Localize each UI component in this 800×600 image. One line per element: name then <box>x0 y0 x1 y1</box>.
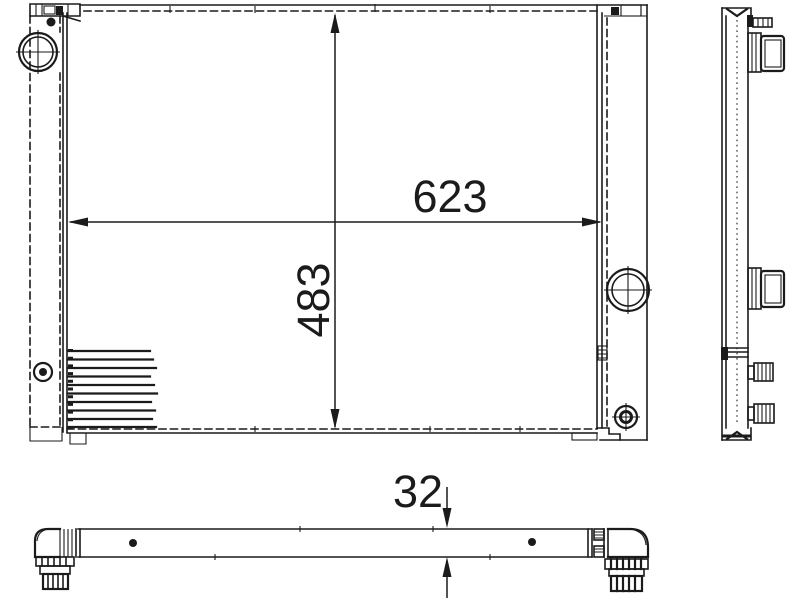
side-view <box>721 8 784 440</box>
radiator-technical-drawing: 623 483 32 <box>0 0 800 600</box>
mounting-bolt-left <box>34 363 52 381</box>
arrowhead-left-icon <box>68 218 88 227</box>
arrowhead-down-icon <box>443 508 452 528</box>
arrowhead-down-icon <box>331 409 340 429</box>
core-outline <box>63 4 647 444</box>
arrowhead-up-icon <box>331 13 340 33</box>
inlet-connector-bottom <box>35 529 80 589</box>
width-dimension-label: 623 <box>412 171 487 222</box>
front-view <box>16 4 652 444</box>
thickness-dimension-label: 32 <box>393 466 443 517</box>
bleed-fitting <box>747 15 772 27</box>
arrowhead-right-icon <box>582 218 602 227</box>
upper-hose-port-side <box>748 33 784 72</box>
threaded-fitting-upper-side <box>748 363 773 381</box>
bottom-view <box>35 526 648 591</box>
lower-hose-port-side <box>748 268 784 309</box>
outlet-connector-bottom <box>588 529 648 591</box>
filler-neck-port <box>16 30 60 74</box>
bottom-strip <box>78 526 592 560</box>
drawing-canvas: 623 483 32 <box>0 0 800 600</box>
cooling-fins-detail <box>68 349 157 430</box>
outlet-port <box>604 266 652 314</box>
mounting-hole-dot <box>129 539 137 547</box>
rivet-dot <box>47 18 56 27</box>
threaded-fitting-lower-side <box>748 404 774 423</box>
arrowhead-up-icon <box>443 557 452 577</box>
tank-joint-side <box>721 347 748 360</box>
dimension-thickness: 32 <box>393 466 452 598</box>
height-dimension-label: 483 <box>288 262 339 337</box>
drain-plug <box>612 403 640 431</box>
mounting-bracket-top-left <box>30 4 80 21</box>
dimension-height: 483 <box>288 13 340 429</box>
mounting-hole-dot <box>528 538 536 546</box>
side-body <box>722 8 751 440</box>
